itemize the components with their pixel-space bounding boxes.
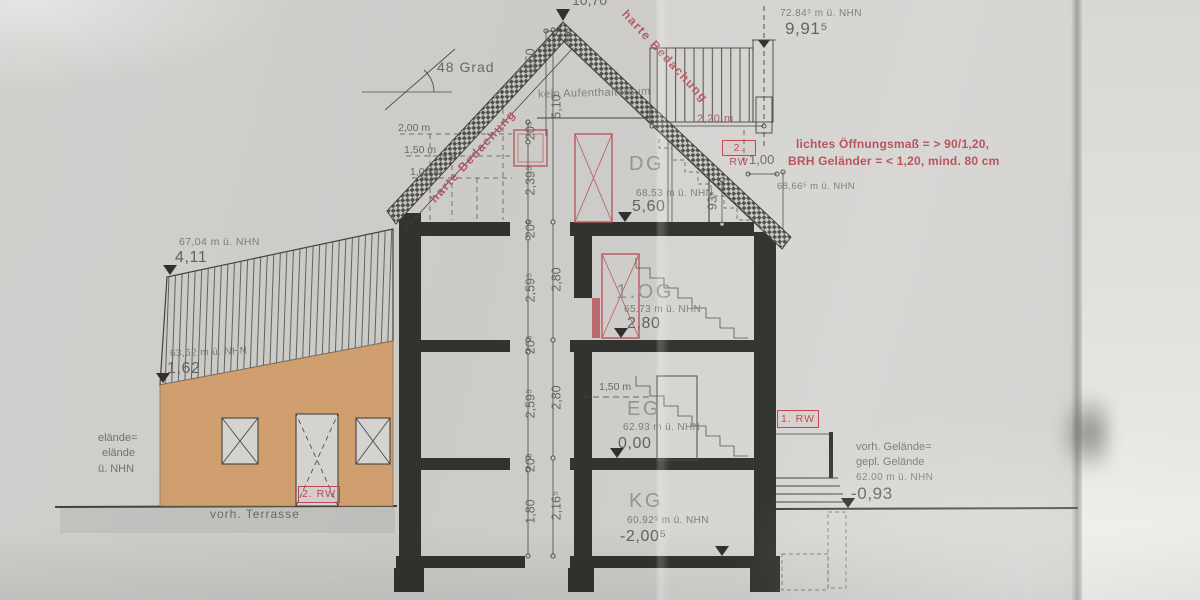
dg-marker — [618, 212, 632, 222]
middle-wall-opening — [574, 298, 592, 340]
height-line-100: 1,00 m — [410, 167, 442, 178]
height-line-200: 2,00 m — [398, 123, 430, 134]
ground-nhn: 62.00 m ü. NHN — [856, 473, 933, 484]
right-wall — [754, 232, 776, 558]
outer-dim-2: 2,80 — [550, 375, 563, 421]
annex-eaves-level: 1,62 — [167, 361, 201, 378]
eg-door-height-dim: 1,50 m — [599, 382, 631, 393]
og-level: 2,80 — [627, 316, 661, 333]
parapet-height-dim: 93⁵ — [706, 178, 719, 224]
inner-dim-3: 2,59⁵ — [524, 265, 537, 311]
annex-roof-level: 4,11 — [175, 250, 207, 267]
inner-dim-1: 2,39⁵ — [524, 158, 537, 204]
height-line-150: 1,50 m — [404, 145, 436, 156]
section-drawing-photo: 10,70 72.84⁵ m ü. NHN 9,91⁵ 48 Grad hart… — [0, 0, 1200, 600]
main-building — [394, 213, 780, 592]
inner-dim-6: 20⁵ — [524, 440, 537, 486]
ground-level: -0,93 — [851, 485, 893, 503]
floor-label-kg: KG — [629, 491, 663, 512]
roof-slope-dim: 2,50 — [524, 38, 537, 84]
outer-dim-1: 2,80 — [550, 257, 563, 303]
window-width-dim: 1,00 — [749, 153, 774, 167]
rescue-way-2-badge-annex: 2. RW — [298, 486, 340, 503]
ground-text-1: vorh. Gelände= — [856, 442, 932, 454]
ridge-marker — [758, 40, 770, 48]
eaves-nhn: 68,66⁵ m ü. NHN — [777, 182, 855, 192]
eg-floor-slab — [421, 458, 510, 470]
opening-note-line-1: lichtes Öffnungsmaß = > 90/1,20, — [796, 138, 989, 151]
og-marker — [614, 328, 628, 338]
apex-marker — [556, 9, 570, 21]
kg-floor-slab — [396, 556, 525, 568]
eg-level: 0,00 — [618, 436, 652, 453]
apex-level-value: 10,70 — [572, 0, 607, 8]
edge-text-3: ü. NHN — [98, 464, 134, 476]
inner-dim-2: 20⁵ — [524, 206, 537, 252]
floor-label-eg: EG — [627, 399, 661, 420]
dg-floor-slab — [421, 222, 510, 236]
ground-text-2: gepl. Gelände — [856, 457, 925, 469]
annex-window-left — [222, 418, 258, 464]
left-wall — [399, 213, 421, 558]
terrain — [55, 506, 1078, 533]
railing-post — [829, 432, 833, 478]
exterior-stair — [775, 432, 846, 590]
annex-roof-nhn: 67,04 m ü. NHN — [179, 237, 260, 248]
rescue-way-1-badge: 1. RW — [777, 410, 819, 428]
opening-note-line-2: BRH Geländer = < 1,20, mind. 80 cm — [788, 155, 1000, 168]
inner-dim-4: 20⁵ — [524, 322, 537, 368]
og-red-strip — [592, 298, 600, 338]
outer-dim-0: 5,10 — [550, 84, 563, 130]
ridge-height: 9,91⁵ — [785, 20, 828, 38]
dg-door — [575, 134, 612, 222]
terrace-label: vorh. Terrasse — [210, 508, 300, 521]
railing-width-dim: 2,20 m — [697, 114, 734, 126]
floor-label-og: 1.OG — [616, 282, 674, 303]
kg-nhn: 60.92⁵ m ü. NHN — [627, 516, 709, 527]
inner-dim-0: 20⁵ — [524, 108, 537, 154]
og-nhn: 65.73 m ü. NHN — [624, 305, 701, 316]
annex-window-right — [356, 418, 390, 464]
edge-text-2: elände — [102, 448, 135, 460]
kg-level: -2,00⁵ — [620, 529, 667, 546]
ridge-nhn: 72.84⁵ m ü. NHN — [780, 9, 862, 20]
eg-nhn: 62.93 m ü. NHN — [623, 423, 700, 434]
outer-dim-3: 2,16⁵ — [550, 483, 563, 529]
inner-dim-7: 1,80 — [524, 489, 537, 535]
roof-angle-label: 48 Grad — [437, 60, 495, 75]
edge-text-1: elände= — [98, 433, 137, 445]
floor-label-dg: DG — [629, 154, 664, 175]
dg-level: 5,60 — [632, 199, 666, 216]
foundation-pad — [394, 568, 424, 592]
inner-dim-5: 2,59⁵ — [524, 381, 537, 427]
kg-marker — [715, 546, 729, 556]
middle-wall — [574, 236, 592, 556]
og-floor-slab — [421, 340, 510, 352]
